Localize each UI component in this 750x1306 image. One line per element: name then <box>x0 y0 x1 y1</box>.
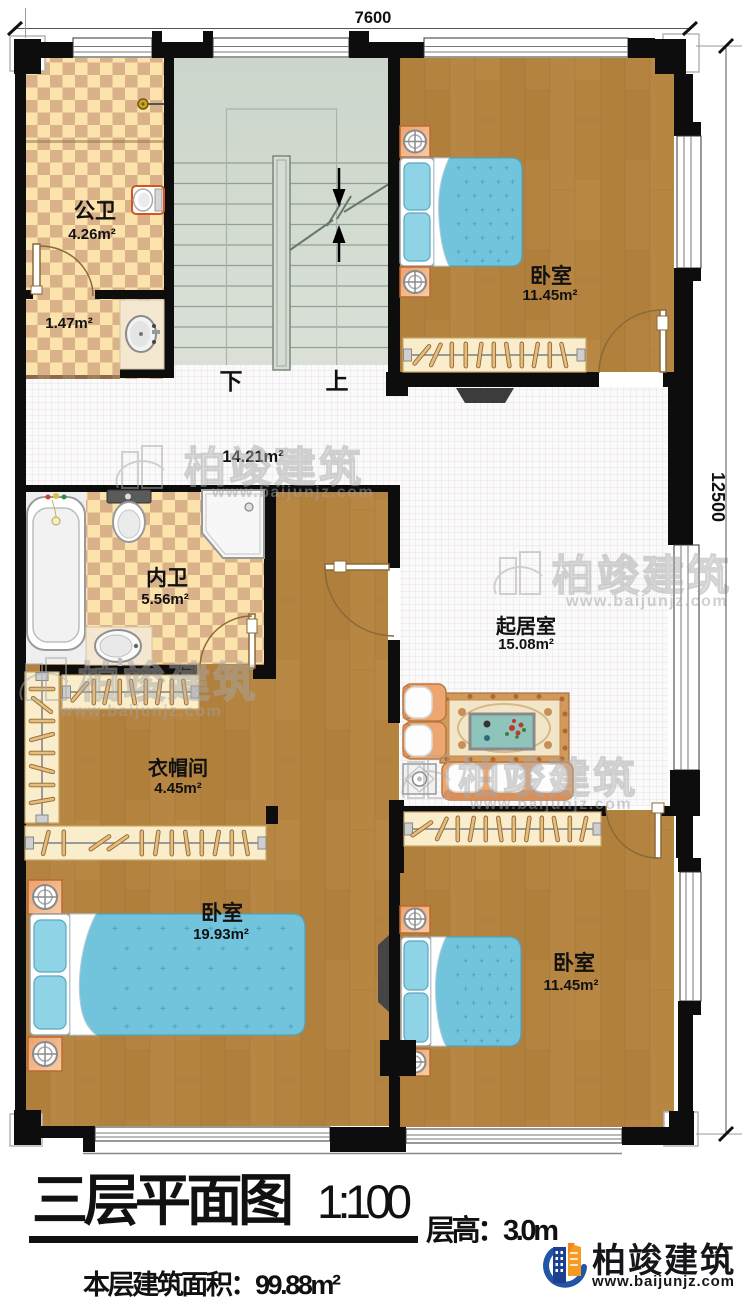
svg-text:1.47m²: 1.47m² <box>45 315 93 332</box>
svg-text:+: + <box>196 984 202 995</box>
svg-text:+: + <box>487 1026 492 1036</box>
svg-text:+: + <box>464 205 469 215</box>
svg-text:+: + <box>124 944 130 955</box>
svg-text:+: + <box>456 191 461 201</box>
svg-text:+: + <box>504 163 509 173</box>
svg-text:+: + <box>479 1036 484 1046</box>
svg-text:+: + <box>463 984 468 994</box>
svg-text:+: + <box>479 984 484 994</box>
svg-text:+: + <box>112 1004 118 1015</box>
svg-text:19.93m²: 19.93m² <box>193 926 249 943</box>
svg-text:+: + <box>464 177 469 187</box>
svg-text:+: + <box>496 205 501 215</box>
svg-text:+: + <box>480 233 485 243</box>
svg-text:+: + <box>220 944 226 955</box>
svg-text:+: + <box>112 964 118 975</box>
svg-text:+: + <box>488 191 493 201</box>
svg-text:卧室: 卧室 <box>530 264 572 288</box>
svg-text:+: + <box>487 998 492 1008</box>
svg-text:+: + <box>488 247 493 257</box>
svg-text:+: + <box>160 1004 166 1015</box>
svg-text:+: + <box>510 177 515 187</box>
svg-text:+: + <box>504 191 509 201</box>
svg-text:+: + <box>496 233 501 243</box>
svg-text:+: + <box>208 964 214 975</box>
svg-text:+: + <box>455 1026 460 1036</box>
svg-text:+: + <box>504 247 509 257</box>
svg-text:+: + <box>232 1004 238 1015</box>
svg-text:+: + <box>510 233 515 243</box>
svg-text:本层建筑面积：99.88m²: 本层建筑面积：99.88m² <box>83 1269 341 1300</box>
svg-text:+: + <box>504 219 509 229</box>
svg-text:三层平面图: 三层平面图 <box>32 1169 294 1232</box>
svg-text:卧室: 卧室 <box>201 901 243 925</box>
svg-text:+: + <box>496 256 501 266</box>
svg-text:+: + <box>160 964 166 975</box>
svg-text:+: + <box>456 163 461 173</box>
svg-text:+: + <box>208 1004 214 1015</box>
svg-text:+: + <box>495 984 500 994</box>
svg-text:+: + <box>471 942 476 952</box>
svg-text:+: + <box>184 964 190 975</box>
svg-text:+: + <box>136 1004 142 1015</box>
svg-text:+: + <box>280 1004 286 1015</box>
svg-text:公卫: 公卫 <box>74 200 116 223</box>
svg-text:+: + <box>244 984 250 995</box>
svg-text:7600: 7600 <box>355 9 392 27</box>
svg-text:+: + <box>220 984 226 995</box>
svg-text:+: + <box>136 924 142 935</box>
svg-text:+: + <box>268 984 274 995</box>
svg-text:+: + <box>510 205 515 215</box>
svg-text:+: + <box>471 970 476 980</box>
svg-text:www.baijunjz.com: www.baijunjz.com <box>591 1273 734 1290</box>
svg-text:12500: 12500 <box>708 472 728 522</box>
svg-text:柏竣建筑: 柏竣建筑 <box>78 659 258 706</box>
svg-text:+: + <box>456 247 461 257</box>
svg-text:1:100: 1:100 <box>317 1175 412 1228</box>
svg-text:+: + <box>472 163 477 173</box>
svg-text:起居室: 起居室 <box>495 614 556 638</box>
svg-text:+: + <box>463 956 468 966</box>
svg-text:柏竣建筑: 柏竣建筑 <box>458 755 638 802</box>
svg-text:www.baijunjz.com: www.baijunjz.com <box>565 593 728 610</box>
svg-text:层高：3.0m: 层高：3.0m <box>426 1214 559 1247</box>
svg-text:内卫: 内卫 <box>146 566 188 590</box>
svg-text:+: + <box>148 944 154 955</box>
svg-text:+: + <box>464 256 469 266</box>
svg-text:衣帽间: 衣帽间 <box>148 756 208 780</box>
svg-text:+: + <box>480 177 485 187</box>
svg-text:+: + <box>487 970 492 980</box>
svg-text:+: + <box>196 1022 202 1033</box>
svg-text:+: + <box>172 984 178 995</box>
svg-text:+: + <box>456 219 461 229</box>
svg-text:5.56m²: 5.56m² <box>141 591 189 608</box>
svg-text:+: + <box>172 1022 178 1033</box>
svg-text:15.08m²: 15.08m² <box>498 636 554 653</box>
svg-text:+: + <box>148 1022 154 1033</box>
svg-text:+: + <box>220 1022 226 1033</box>
svg-text:+: + <box>472 219 477 229</box>
svg-text:+: + <box>184 1004 190 1015</box>
svg-text:+: + <box>487 942 492 952</box>
svg-text:+: + <box>463 1012 468 1022</box>
svg-text:+: + <box>196 944 202 955</box>
svg-text:+: + <box>503 998 508 1008</box>
svg-text:+: + <box>124 984 130 995</box>
svg-text:11.45m²: 11.45m² <box>522 287 577 304</box>
svg-text:+: + <box>455 998 460 1008</box>
svg-text:www.baijunjz.com: www.baijunjz.com <box>469 796 632 813</box>
svg-text:+: + <box>288 944 294 955</box>
svg-text:下: 下 <box>220 368 243 394</box>
svg-text:+: + <box>184 924 190 935</box>
svg-text:+: + <box>463 1036 468 1046</box>
svg-text:4.26m²: 4.26m² <box>68 226 116 243</box>
svg-text:柏竣建筑: 柏竣建筑 <box>552 552 732 599</box>
svg-text:+: + <box>256 964 262 975</box>
svg-text:+: + <box>480 205 485 215</box>
svg-text:卧室: 卧室 <box>553 951 595 975</box>
svg-text:+: + <box>503 970 508 980</box>
svg-text:+: + <box>472 247 477 257</box>
svg-text:+: + <box>509 956 514 966</box>
svg-text:+: + <box>464 233 469 243</box>
svg-text:+: + <box>479 956 484 966</box>
svg-text:+: + <box>496 177 501 187</box>
svg-text:+: + <box>112 924 118 935</box>
svg-text:+: + <box>479 1012 484 1022</box>
svg-text:+: + <box>488 219 493 229</box>
svg-text:11.45m²: 11.45m² <box>543 977 598 994</box>
svg-text:+: + <box>288 984 294 995</box>
svg-text:+: + <box>495 956 500 966</box>
svg-text:+: + <box>256 1004 262 1015</box>
svg-text:+: + <box>268 1022 274 1033</box>
svg-text:www.baijunjz.com: www.baijunjz.com <box>211 484 374 501</box>
svg-text:+: + <box>471 998 476 1008</box>
svg-text:+: + <box>244 1022 250 1033</box>
svg-text:+: + <box>160 924 166 935</box>
svg-text:+: + <box>509 984 514 994</box>
svg-text:+: + <box>495 1036 500 1046</box>
svg-text:+: + <box>495 1012 500 1022</box>
svg-text:+: + <box>480 256 485 266</box>
svg-text:+: + <box>280 964 286 975</box>
svg-text:+: + <box>455 970 460 980</box>
svg-text:上: 上 <box>326 368 349 394</box>
svg-text:+: + <box>288 1022 294 1033</box>
svg-text:+: + <box>503 1026 508 1036</box>
svg-text:+: + <box>232 964 238 975</box>
svg-text:+: + <box>509 1012 514 1022</box>
svg-text:+: + <box>280 924 286 935</box>
svg-text:www.baijunjz.com: www.baijunjz.com <box>59 703 222 720</box>
svg-text:+: + <box>148 984 154 995</box>
svg-text:+: + <box>471 1026 476 1036</box>
svg-text:+: + <box>455 942 460 952</box>
svg-text:+: + <box>503 942 508 952</box>
svg-text:+: + <box>472 191 477 201</box>
svg-text:4.45m²: 4.45m² <box>154 780 202 797</box>
svg-text:+: + <box>124 1022 130 1033</box>
svg-text:+: + <box>172 944 178 955</box>
svg-text:+: + <box>256 924 262 935</box>
svg-text:+: + <box>244 944 250 955</box>
svg-text:+: + <box>136 964 142 975</box>
svg-text:+: + <box>488 163 493 173</box>
svg-text:+: + <box>268 944 274 955</box>
